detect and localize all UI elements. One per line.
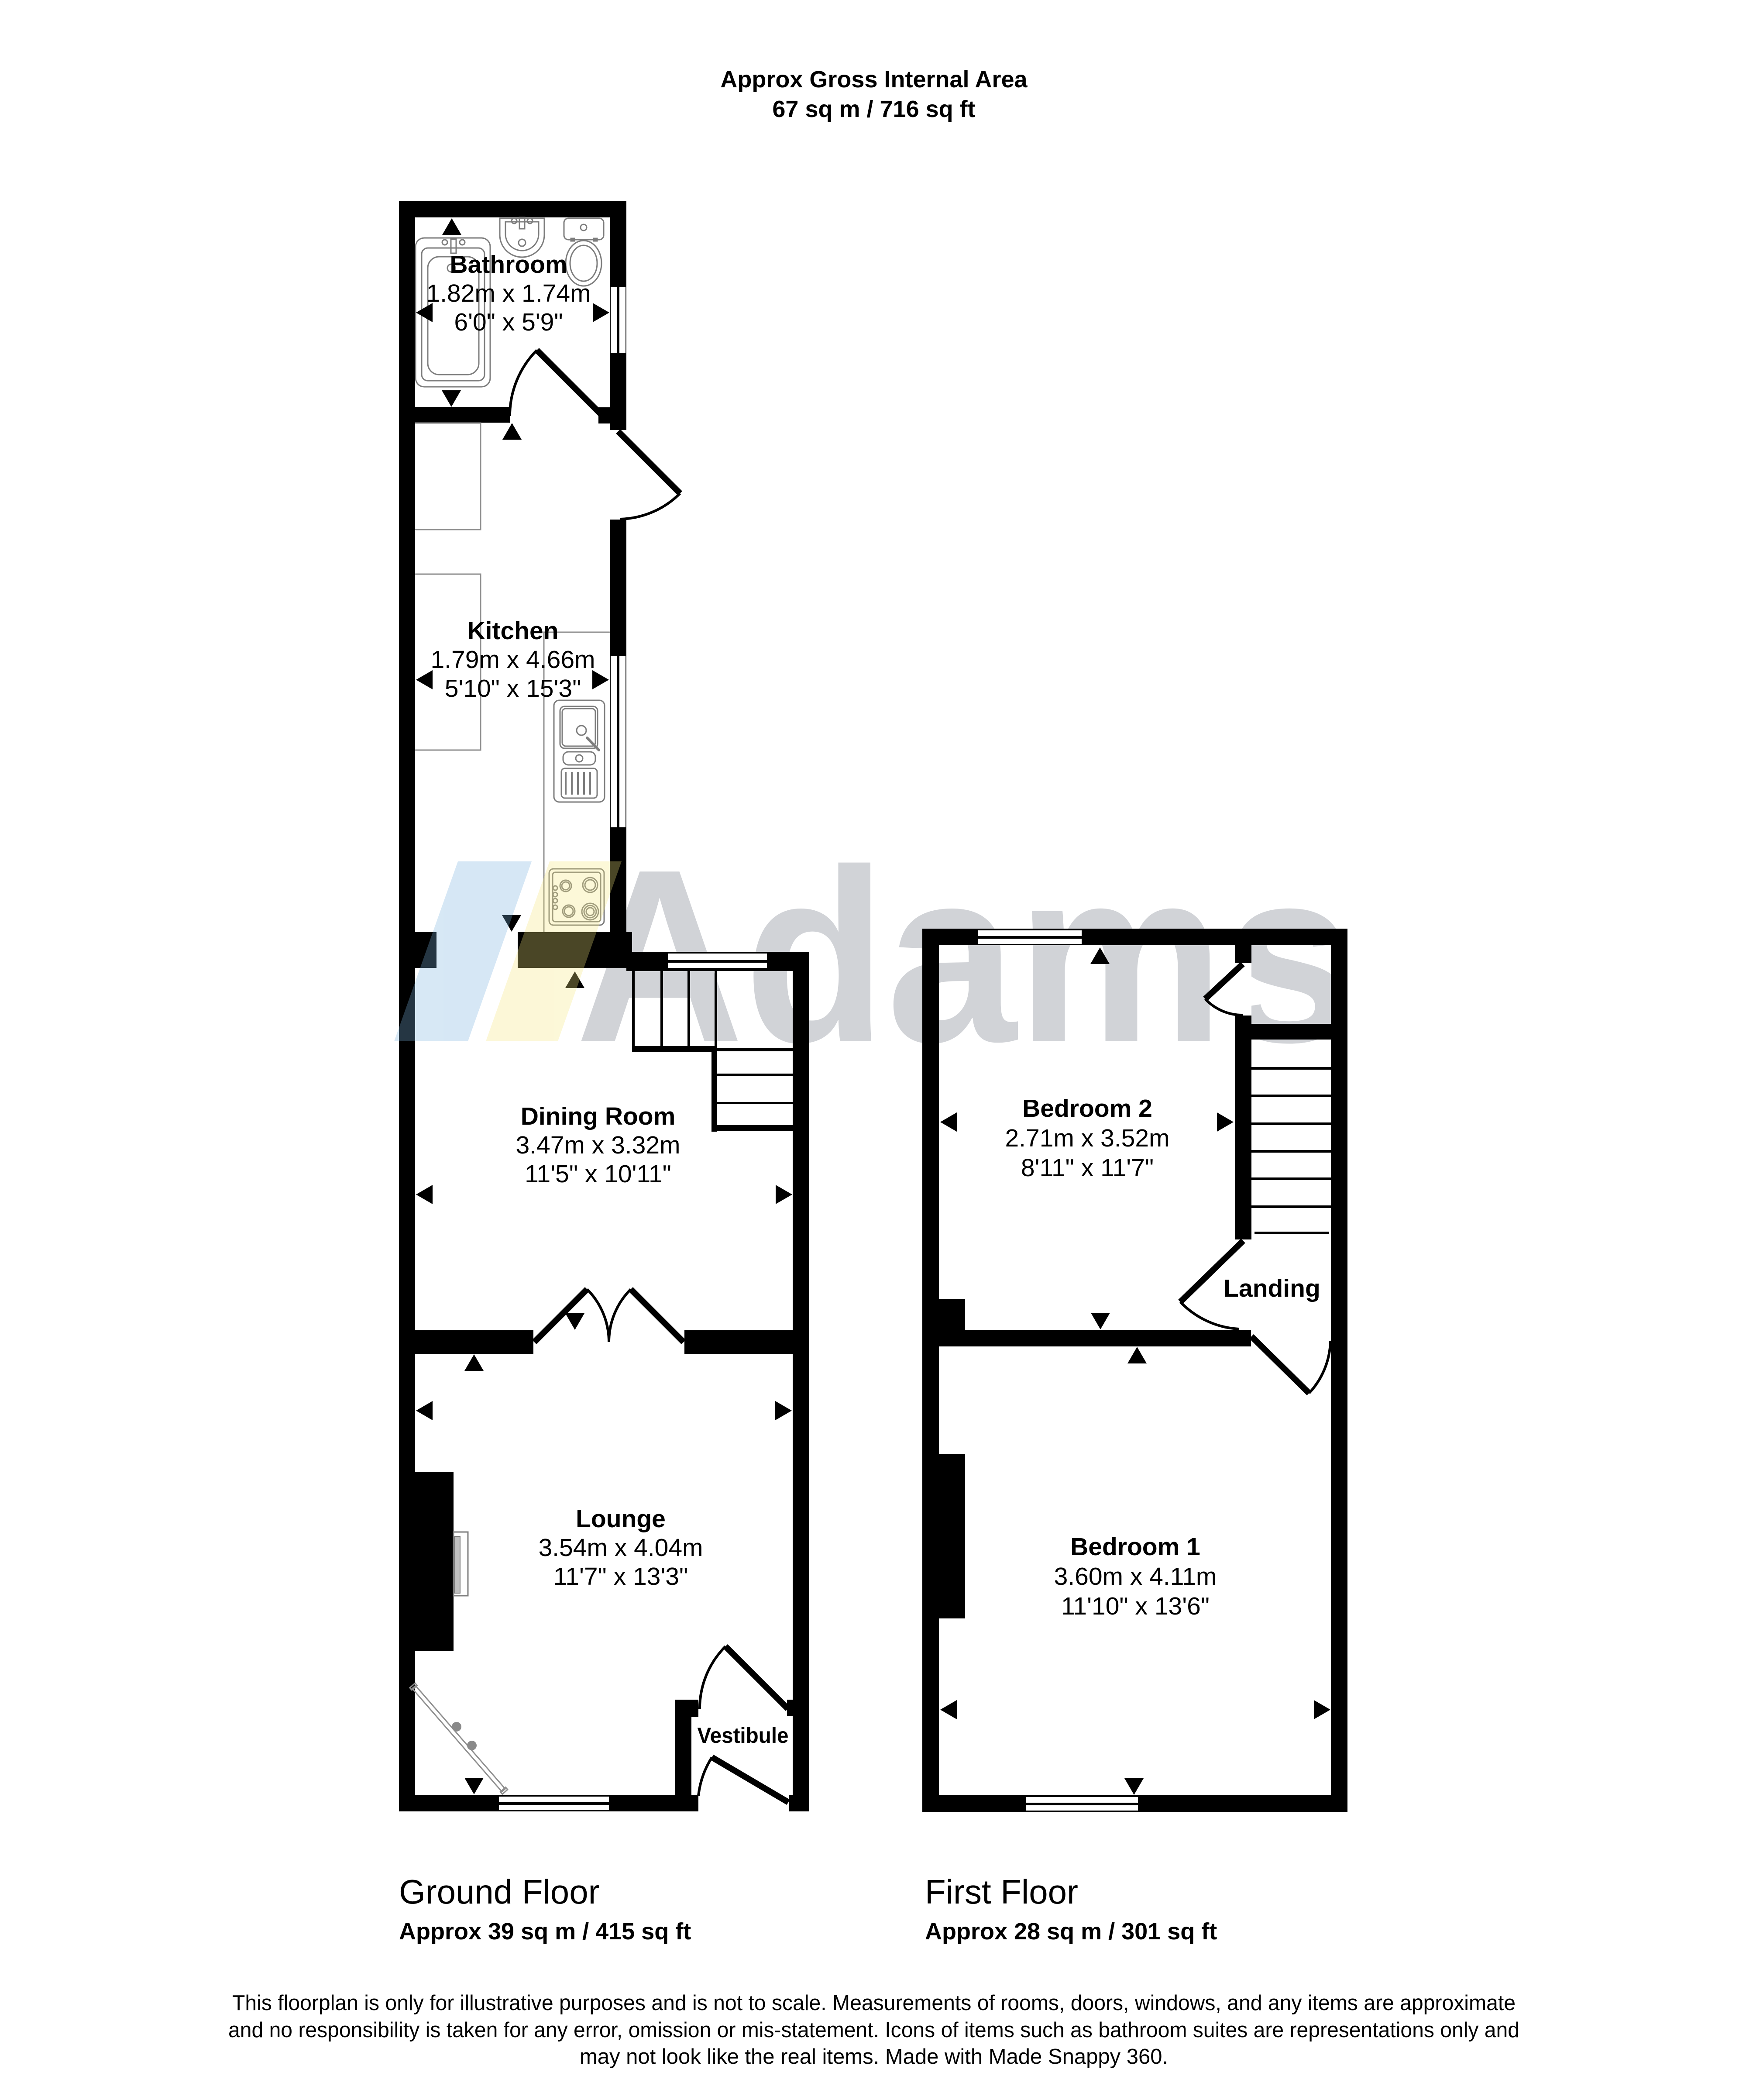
svg-text:8'11" x 11'7": 8'11" x 11'7": [1021, 1154, 1154, 1182]
svg-text:This floorplan is only for ill: This floorplan is only for illustrative …: [232, 1991, 1516, 2015]
svg-text:67 sq m / 716 sq ft: 67 sq m / 716 sq ft: [772, 96, 975, 122]
svg-text:5'10" x 15'3": 5'10" x 15'3": [445, 675, 581, 702]
svg-text:11'5" x 10'11": 11'5" x 10'11": [525, 1160, 671, 1188]
svg-text:2.71m x 3.52m: 2.71m x 3.52m: [1005, 1124, 1169, 1152]
svg-text:Approx Gross Internal Area: Approx Gross Internal Area: [720, 66, 1028, 93]
svg-text:Lounge: Lounge: [576, 1505, 666, 1533]
svg-text:3.47m x 3.32m: 3.47m x 3.32m: [516, 1131, 680, 1159]
svg-text:Approx 28 sq m / 301 sq ft: Approx 28 sq m / 301 sq ft: [925, 1918, 1217, 1945]
svg-text:Bedroom 1: Bedroom 1: [1070, 1533, 1200, 1561]
svg-text:First Floor: First Floor: [925, 1873, 1078, 1911]
svg-text:Bathroom: Bathroom: [450, 251, 567, 279]
svg-text:Dining Room: Dining Room: [521, 1102, 676, 1130]
svg-text:11'7" x 13'3": 11'7" x 13'3": [553, 1563, 688, 1590]
svg-text:Approx 39 sq m / 415 sq ft: Approx 39 sq m / 415 sq ft: [399, 1918, 691, 1945]
svg-text:11'10" x 13'6": 11'10" x 13'6": [1061, 1592, 1210, 1620]
svg-text:Bedroom 2: Bedroom 2: [1022, 1095, 1152, 1122]
svg-text:3.60m x 4.11m: 3.60m x 4.11m: [1054, 1563, 1217, 1590]
svg-text:6'0" x 5'9": 6'0" x 5'9": [454, 308, 563, 336]
svg-text:3.54m x 4.04m: 3.54m x 4.04m: [538, 1534, 703, 1562]
svg-text:1.82m x 1.74m: 1.82m x 1.74m: [426, 279, 591, 307]
svg-text:Landing: Landing: [1224, 1274, 1320, 1302]
svg-text:Kitchen: Kitchen: [467, 617, 558, 645]
svg-text:and no responsibility is taken: and no responsibility is taken for any e…: [228, 2018, 1519, 2042]
svg-text:may not look like the real ite: may not look like the real items. Made w…: [580, 2045, 1168, 2069]
svg-text:1.79m x 4.66m: 1.79m x 4.66m: [430, 646, 595, 674]
svg-text:Vestibule: Vestibule: [698, 1723, 789, 1748]
svg-text:Ground Floor: Ground Floor: [399, 1873, 600, 1911]
